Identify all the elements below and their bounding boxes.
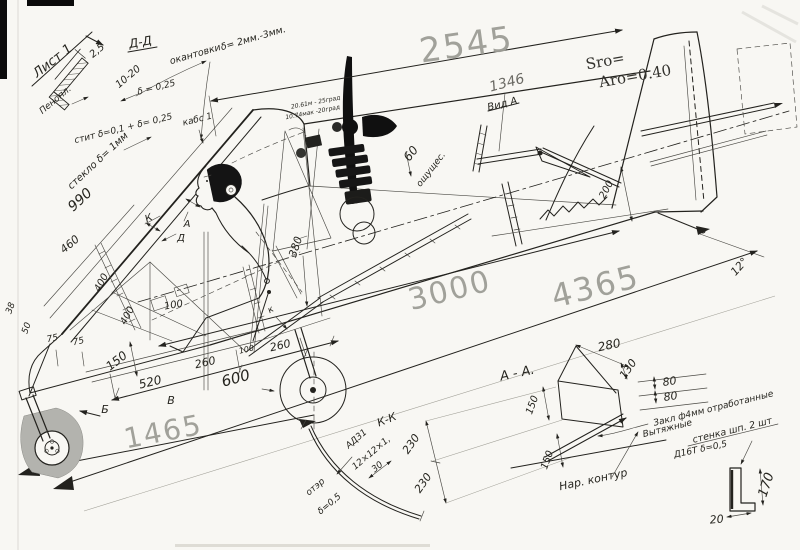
marker-v: В: [167, 394, 175, 407]
dim-80b: 80: [663, 389, 679, 404]
pilot-ear: [226, 185, 237, 196]
dim-80a: 80: [662, 374, 678, 389]
marker-b: Б: [101, 403, 109, 416]
aircraft-blueprint-scan: Лист 1 Д-Д 2,5 10-20 δ = 0,25 Пенопл. ок…: [0, 0, 800, 550]
marker-d: Д: [176, 233, 185, 244]
dim-20: 20: [709, 512, 724, 526]
marker-a: А: [183, 219, 191, 230]
aircraft-drawing-svg: Лист 1 Д-Д 2,5 10-20 δ = 0,25 Пенопл. ок…: [0, 0, 800, 550]
